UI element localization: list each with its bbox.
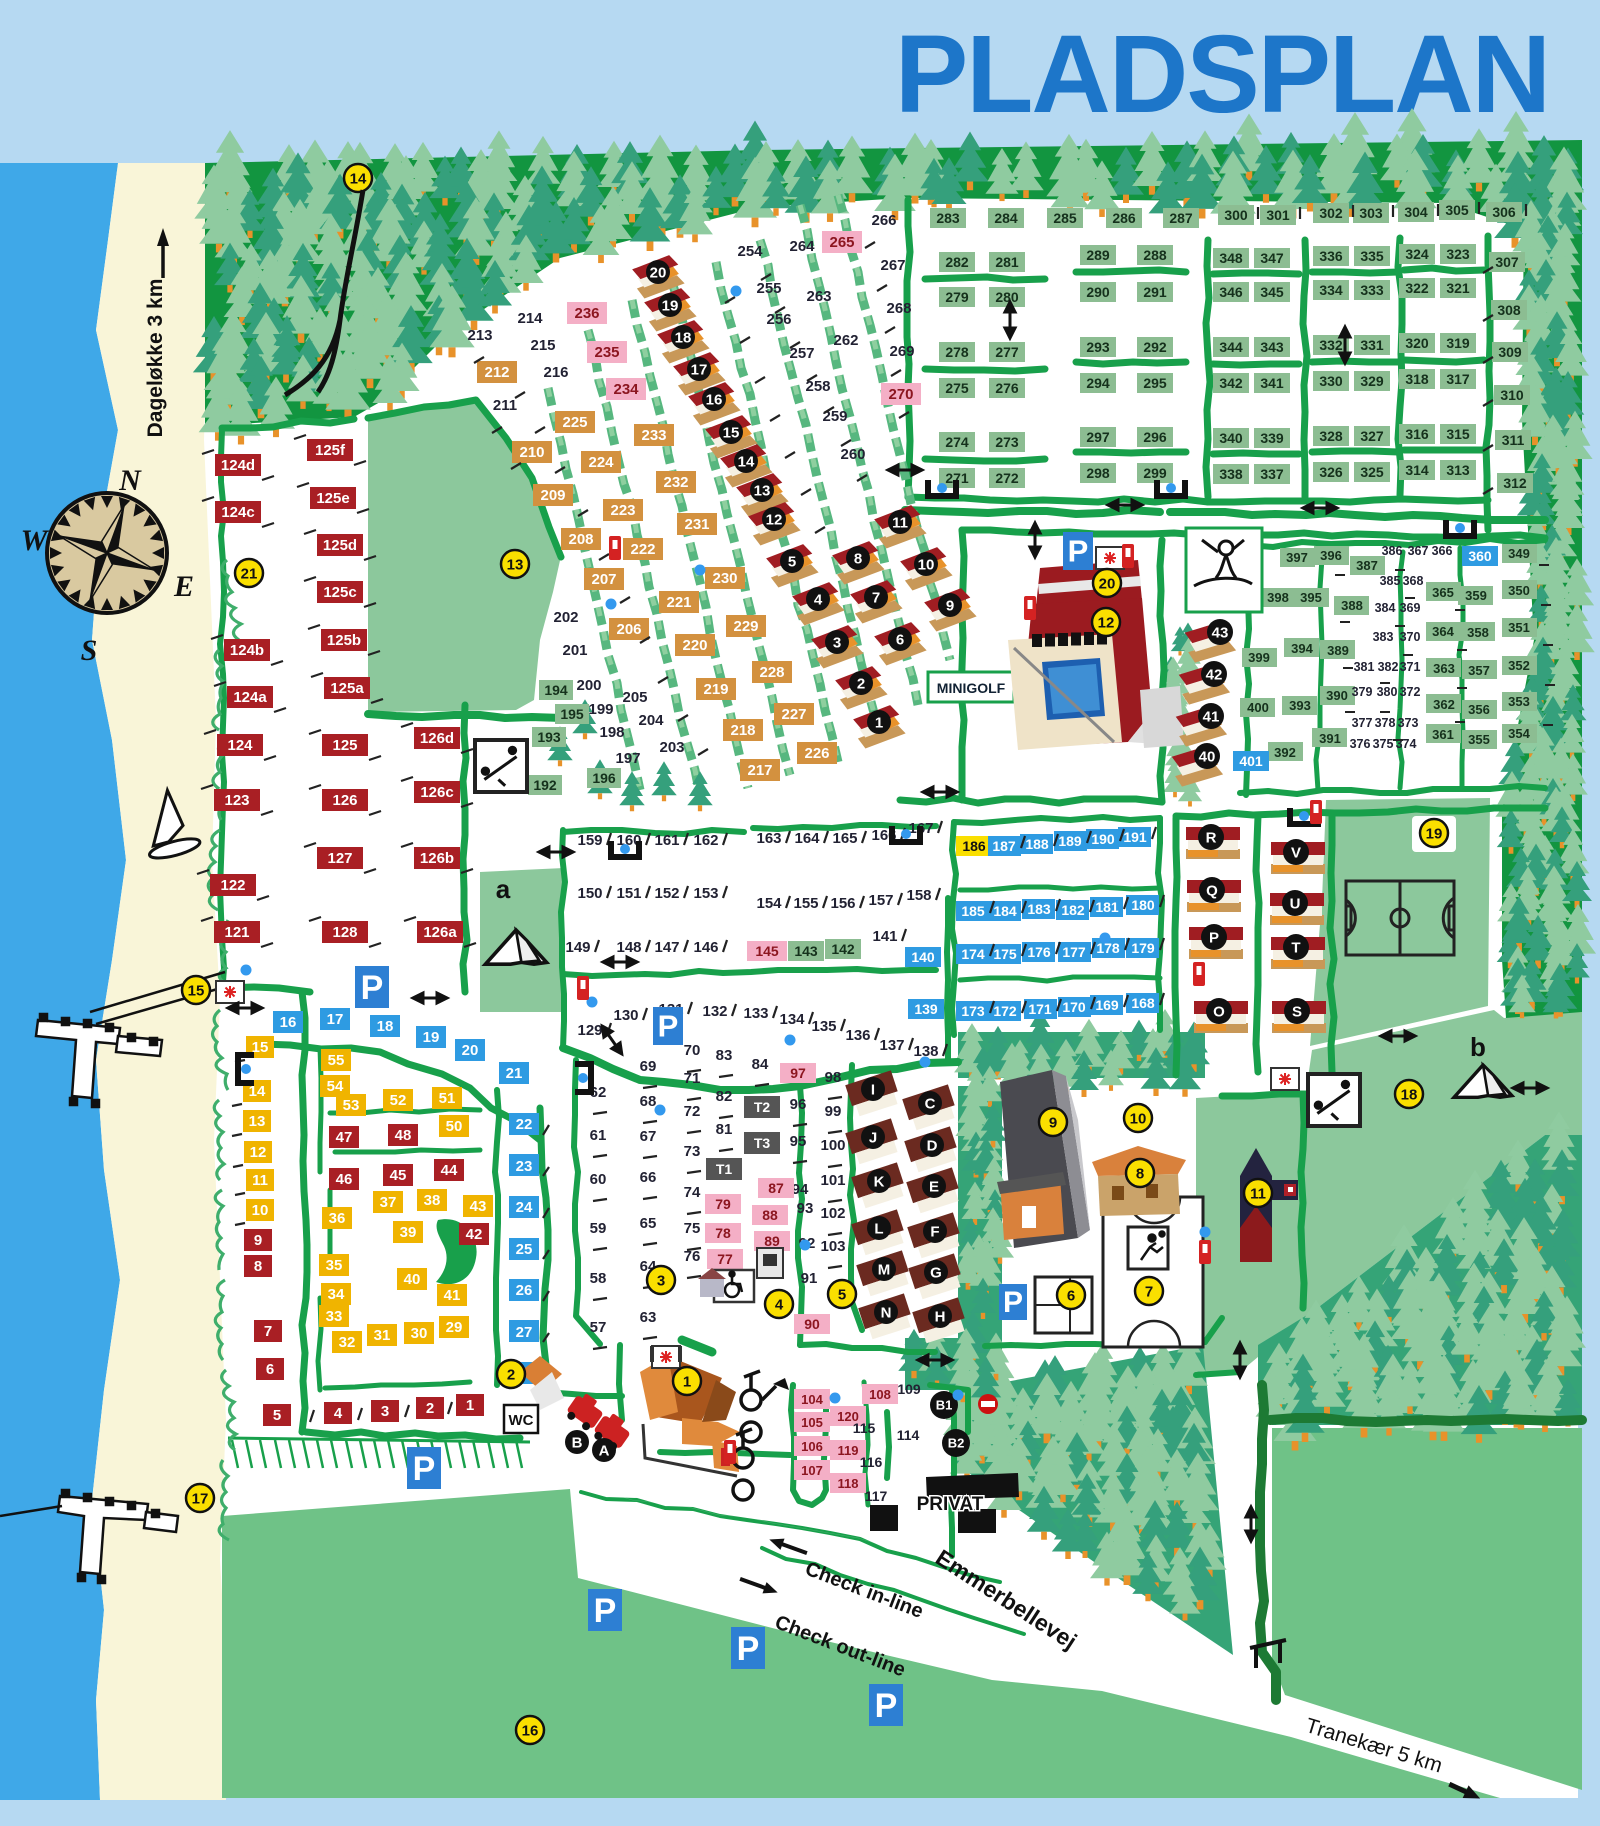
svg-text:I: I (871, 1081, 875, 1098)
svg-text:310: 310 (1500, 387, 1524, 403)
svg-text:298: 298 (1086, 465, 1110, 481)
svg-text:337: 337 (1260, 466, 1284, 482)
svg-text:17: 17 (691, 361, 708, 378)
svg-text:D: D (927, 1137, 938, 1154)
svg-text:342: 342 (1219, 375, 1243, 391)
svg-text:165: 165 (832, 830, 857, 847)
svg-text:19: 19 (662, 297, 679, 314)
svg-text:126: 126 (332, 792, 357, 809)
svg-text:Q: Q (1206, 882, 1218, 899)
svg-text:363: 363 (1433, 661, 1455, 676)
svg-text:70: 70 (684, 1042, 701, 1059)
svg-text:P: P (737, 1630, 760, 1668)
svg-text:380: 380 (1377, 685, 1398, 699)
svg-text:124d: 124d (221, 457, 255, 474)
svg-text:9: 9 (1049, 1114, 1057, 1131)
svg-text:60: 60 (590, 1171, 607, 1188)
svg-text:58: 58 (590, 1270, 607, 1287)
svg-text:15: 15 (723, 424, 740, 441)
svg-text:157: 157 (868, 892, 893, 909)
svg-text:338: 338 (1219, 466, 1243, 482)
svg-text:P: P (413, 1450, 436, 1488)
svg-text:27: 27 (516, 1324, 533, 1341)
svg-text:21: 21 (506, 1065, 523, 1082)
svg-text:268: 268 (886, 300, 911, 317)
svg-text:89: 89 (764, 1233, 780, 1249)
svg-text:126a: 126a (423, 924, 457, 941)
svg-text:52: 52 (390, 1092, 407, 1109)
svg-text:146: 146 (693, 939, 718, 956)
svg-text:104: 104 (801, 1392, 823, 1407)
svg-text:284: 284 (994, 210, 1018, 226)
svg-text:388: 388 (1341, 598, 1363, 613)
svg-text:134: 134 (779, 1011, 805, 1028)
svg-text:217: 217 (747, 762, 772, 779)
svg-text:5: 5 (273, 1407, 281, 1424)
svg-text:344: 344 (1219, 339, 1243, 355)
svg-text:171: 171 (1028, 1001, 1052, 1017)
svg-text:142: 142 (831, 941, 855, 957)
svg-text:175: 175 (993, 946, 1017, 962)
svg-text:323: 323 (1446, 246, 1470, 262)
svg-text:11: 11 (892, 514, 908, 531)
svg-text:59: 59 (590, 1220, 607, 1237)
svg-text:329: 329 (1360, 373, 1384, 389)
svg-text:67: 67 (640, 1128, 657, 1145)
svg-text:233: 233 (641, 427, 666, 444)
svg-text:B1: B1 (936, 1398, 953, 1413)
svg-text:382: 382 (1378, 660, 1399, 674)
svg-text:397: 397 (1286, 550, 1308, 565)
svg-text:4: 4 (775, 1296, 784, 1313)
svg-text:269: 269 (889, 343, 914, 360)
svg-text:121: 121 (224, 924, 249, 941)
svg-text:294: 294 (1086, 375, 1110, 391)
svg-text:31: 31 (374, 1327, 391, 1344)
svg-text:116: 116 (860, 1454, 883, 1470)
svg-text:223: 223 (610, 502, 635, 519)
svg-text:347: 347 (1260, 250, 1284, 266)
svg-text:289: 289 (1086, 247, 1110, 263)
svg-text:359: 359 (1465, 588, 1487, 603)
svg-text:315: 315 (1446, 426, 1470, 442)
svg-text:209: 209 (540, 487, 565, 504)
svg-text:197: 197 (615, 750, 640, 767)
svg-text:107: 107 (801, 1463, 823, 1478)
svg-text:336: 336 (1319, 248, 1343, 264)
svg-text:44: 44 (441, 1162, 458, 1179)
svg-text:311: 311 (1502, 432, 1525, 448)
svg-text:196: 196 (592, 770, 616, 786)
svg-text:360: 360 (1468, 548, 1492, 564)
svg-text:365: 365 (1432, 585, 1454, 600)
svg-text:98: 98 (825, 1069, 842, 1086)
svg-text:263: 263 (806, 288, 831, 305)
svg-text:155: 155 (793, 895, 818, 912)
svg-text:264: 264 (789, 238, 815, 255)
svg-text:188: 188 (1025, 836, 1049, 852)
svg-text:255: 255 (756, 280, 781, 297)
svg-text:P: P (875, 1687, 898, 1725)
svg-text:364: 364 (1432, 624, 1454, 639)
svg-text:292: 292 (1143, 339, 1167, 355)
svg-text:229: 229 (733, 618, 758, 635)
svg-text:324: 324 (1405, 246, 1429, 262)
svg-text:303: 303 (1359, 205, 1383, 221)
svg-text:P: P (1068, 534, 1089, 569)
svg-text:306: 306 (1492, 204, 1516, 220)
svg-text:133: 133 (743, 1005, 768, 1022)
svg-text:164: 164 (794, 830, 820, 847)
svg-text:177: 177 (1062, 944, 1086, 960)
svg-text:400: 400 (1247, 700, 1269, 715)
svg-text:E: E (929, 1178, 939, 1195)
svg-text:214: 214 (517, 310, 543, 327)
svg-text:19: 19 (1426, 825, 1443, 842)
svg-text:385: 385 (1380, 574, 1401, 588)
svg-text:189: 189 (1058, 833, 1082, 849)
svg-text:377: 377 (1352, 716, 1373, 730)
svg-text:195: 195 (560, 706, 584, 722)
svg-text:352: 352 (1508, 658, 1530, 673)
svg-text:22: 22 (516, 1116, 533, 1133)
svg-text:320: 320 (1405, 335, 1429, 351)
svg-text:266: 266 (871, 212, 896, 229)
svg-text:1: 1 (683, 1373, 691, 1390)
svg-text:275: 275 (945, 380, 969, 396)
svg-text:12: 12 (766, 511, 783, 528)
svg-text:156: 156 (830, 895, 855, 912)
svg-text:WC: WC (509, 1412, 534, 1429)
svg-text:172: 172 (993, 1003, 1017, 1019)
svg-text:72: 72 (684, 1103, 701, 1120)
svg-text:114: 114 (897, 1427, 920, 1443)
svg-text:193: 193 (537, 729, 561, 745)
svg-text:51: 51 (439, 1090, 456, 1107)
svg-text:194: 194 (544, 682, 568, 698)
svg-text:57: 57 (590, 1319, 607, 1336)
svg-text:126d: 126d (420, 730, 454, 747)
svg-text:125e: 125e (316, 490, 349, 507)
svg-text:124: 124 (227, 737, 253, 754)
svg-text:V: V (1291, 844, 1301, 861)
svg-text:26: 26 (516, 1282, 533, 1299)
svg-text:75: 75 (684, 1220, 701, 1237)
svg-text:84: 84 (752, 1056, 769, 1073)
svg-text:333: 333 (1360, 282, 1384, 298)
svg-text:273: 273 (995, 434, 1019, 450)
svg-text:46: 46 (336, 1171, 353, 1188)
svg-text:293: 293 (1086, 339, 1110, 355)
svg-text:42: 42 (466, 1226, 483, 1243)
svg-text:13: 13 (754, 482, 771, 499)
svg-text:299: 299 (1143, 465, 1167, 481)
svg-text:125d: 125d (323, 537, 357, 554)
svg-text:280: 280 (995, 289, 1019, 305)
svg-text:29: 29 (446, 1319, 463, 1336)
svg-text:290: 290 (1086, 284, 1110, 300)
svg-text:277: 277 (995, 344, 1019, 360)
svg-text:182: 182 (1061, 902, 1085, 918)
svg-text:6: 6 (1067, 1287, 1075, 1304)
svg-text:286: 286 (1112, 210, 1136, 226)
svg-text:367: 367 (1408, 544, 1429, 558)
svg-text:9: 9 (254, 1232, 262, 1249)
svg-text:340: 340 (1219, 430, 1243, 446)
svg-text:370: 370 (1400, 630, 1421, 644)
svg-text:376: 376 (1350, 737, 1371, 751)
svg-text:325: 325 (1360, 464, 1384, 480)
svg-text:9: 9 (946, 597, 954, 614)
svg-text:61: 61 (590, 1127, 607, 1144)
svg-text:P: P (361, 969, 384, 1007)
svg-text:E: E (173, 570, 194, 603)
svg-text:312: 312 (1503, 475, 1527, 491)
svg-text:391: 391 (1319, 731, 1341, 746)
svg-text:L: L (874, 1220, 883, 1237)
svg-text:73: 73 (684, 1143, 701, 1160)
svg-text:96: 96 (790, 1096, 807, 1113)
svg-text:390: 390 (1326, 688, 1348, 703)
svg-text:7: 7 (872, 589, 880, 606)
svg-text:219: 219 (703, 681, 728, 698)
svg-text:42: 42 (1206, 666, 1223, 683)
svg-text:66: 66 (640, 1169, 657, 1186)
svg-text:203: 203 (659, 739, 684, 756)
svg-text:125b: 125b (327, 632, 361, 649)
svg-text:201: 201 (562, 642, 587, 659)
svg-text:37: 37 (380, 1194, 397, 1211)
svg-text:207: 207 (591, 571, 616, 588)
svg-text:14: 14 (738, 453, 755, 470)
svg-text:B2: B2 (948, 1436, 965, 1451)
svg-text:36: 36 (329, 1210, 346, 1227)
svg-text:145: 145 (755, 943, 779, 959)
svg-text:15: 15 (188, 982, 205, 999)
svg-text:3: 3 (833, 634, 841, 651)
svg-text:77: 77 (717, 1251, 733, 1267)
svg-text:33: 33 (326, 1308, 343, 1325)
svg-text:N: N (881, 1304, 892, 1321)
svg-text:132: 132 (702, 1003, 727, 1020)
svg-text:341: 341 (1260, 375, 1284, 391)
svg-text:346: 346 (1219, 284, 1243, 300)
svg-text:187: 187 (992, 838, 1016, 854)
svg-text:225: 225 (562, 414, 587, 431)
svg-text:173: 173 (961, 1003, 985, 1019)
svg-text:11: 11 (1250, 1185, 1266, 1202)
svg-text:17: 17 (327, 1011, 344, 1028)
svg-text:18: 18 (377, 1018, 394, 1035)
svg-text:13: 13 (249, 1113, 266, 1130)
svg-text:301: 301 (1266, 207, 1290, 223)
svg-text:93: 93 (797, 1200, 814, 1217)
svg-text:161: 161 (654, 832, 679, 849)
svg-text:357: 357 (1468, 663, 1490, 678)
svg-text:141: 141 (872, 928, 897, 945)
svg-text:14: 14 (350, 170, 367, 187)
svg-text:362: 362 (1433, 697, 1455, 712)
svg-text:254: 254 (737, 243, 763, 260)
svg-text:50: 50 (446, 1118, 463, 1135)
svg-text:350: 350 (1508, 583, 1530, 598)
svg-text:7: 7 (1145, 1283, 1153, 1300)
svg-text:220: 220 (682, 637, 707, 654)
svg-text:124a: 124a (233, 689, 267, 706)
svg-text:87: 87 (768, 1180, 784, 1196)
svg-text:296: 296 (1143, 429, 1167, 445)
svg-text:45: 45 (390, 1167, 407, 1184)
svg-text:316: 316 (1405, 426, 1429, 442)
svg-text:125a: 125a (330, 680, 364, 697)
svg-text:119: 119 (838, 1443, 859, 1458)
svg-text:322: 322 (1405, 280, 1429, 296)
svg-text:J: J (869, 1129, 877, 1146)
svg-text:2: 2 (857, 675, 865, 692)
svg-text:16: 16 (280, 1014, 297, 1031)
svg-text:76: 76 (684, 1248, 701, 1265)
svg-text:34: 34 (328, 1286, 345, 1303)
svg-text:118: 118 (838, 1476, 859, 1491)
svg-text:232: 232 (663, 474, 688, 491)
svg-text:185: 185 (961, 903, 985, 919)
svg-text:126b: 126b (420, 850, 454, 867)
svg-text:265: 265 (829, 234, 854, 251)
svg-text:32: 32 (339, 1334, 356, 1351)
svg-text:176: 176 (1027, 944, 1051, 960)
svg-text:6: 6 (896, 631, 904, 648)
svg-text:270: 270 (888, 386, 913, 403)
svg-text:PRIVAT: PRIVAT (917, 1494, 984, 1515)
svg-text:30: 30 (411, 1325, 428, 1342)
svg-text:128: 128 (332, 924, 357, 941)
svg-text:200: 200 (576, 677, 601, 694)
svg-text:236: 236 (574, 305, 599, 322)
svg-text:354: 354 (1508, 726, 1530, 741)
svg-text:190: 190 (1091, 831, 1115, 847)
svg-text:345: 345 (1260, 284, 1284, 300)
svg-text:152: 152 (654, 885, 679, 902)
svg-text:125: 125 (332, 737, 357, 754)
svg-text:328: 328 (1319, 428, 1343, 444)
svg-text:396: 396 (1320, 548, 1342, 563)
svg-text:16: 16 (706, 391, 723, 408)
svg-text:8: 8 (254, 1258, 262, 1275)
svg-text:124c: 124c (221, 504, 254, 521)
svg-text:83: 83 (716, 1047, 733, 1064)
svg-text:267: 267 (880, 257, 905, 274)
svg-text:122: 122 (220, 877, 245, 894)
svg-text:G: G (930, 1264, 942, 1281)
svg-text:148: 148 (616, 939, 641, 956)
svg-text:P: P (1003, 1286, 1023, 1319)
svg-text:A: A (599, 1442, 610, 1459)
svg-text:279: 279 (945, 289, 969, 305)
svg-text:17: 17 (192, 1490, 209, 1507)
svg-text:M: M (878, 1261, 891, 1278)
svg-text:81: 81 (716, 1121, 733, 1138)
svg-text:91: 91 (801, 1270, 818, 1287)
svg-text:308: 308 (1497, 302, 1521, 318)
svg-text:105: 105 (801, 1415, 823, 1430)
svg-text:169: 169 (1095, 997, 1119, 1013)
svg-text:327: 327 (1360, 428, 1384, 444)
svg-text:41: 41 (444, 1287, 461, 1304)
svg-text:348: 348 (1219, 250, 1243, 266)
svg-text:129: 129 (577, 1022, 602, 1039)
svg-text:140: 140 (911, 949, 935, 965)
svg-text:355: 355 (1468, 732, 1490, 747)
svg-text:39: 39 (400, 1224, 417, 1241)
svg-text:21: 21 (241, 565, 258, 582)
svg-text:230: 230 (712, 570, 737, 587)
svg-text:302: 302 (1319, 205, 1343, 221)
svg-text:54: 54 (327, 1078, 344, 1095)
svg-text:210: 210 (519, 444, 544, 461)
svg-text:281: 281 (995, 254, 1019, 270)
svg-text:321: 321 (1446, 280, 1470, 296)
svg-text:218: 218 (730, 722, 755, 739)
svg-text:H: H (935, 1308, 946, 1325)
svg-text:5: 5 (838, 1286, 846, 1303)
svg-text:159: 159 (577, 832, 602, 849)
svg-text:41: 41 (1203, 708, 1220, 725)
svg-text:398: 398 (1267, 590, 1289, 605)
svg-text:95: 95 (790, 1133, 807, 1150)
svg-text:358: 358 (1467, 625, 1489, 640)
svg-text:211: 211 (493, 397, 517, 414)
svg-text:6: 6 (266, 1361, 274, 1378)
svg-text:Dageløkke 3 km: Dageløkke 3 km (144, 279, 167, 438)
svg-text:319: 319 (1446, 335, 1470, 351)
svg-text:208: 208 (568, 531, 593, 548)
svg-text:101: 101 (820, 1172, 845, 1189)
svg-text:82: 82 (716, 1088, 733, 1105)
svg-text:174: 174 (961, 946, 985, 962)
svg-text:13: 13 (507, 556, 524, 573)
svg-text:394: 394 (1291, 641, 1313, 656)
svg-text:19: 19 (423, 1029, 440, 1046)
svg-text:318: 318 (1405, 371, 1429, 387)
svg-text:221: 221 (666, 594, 691, 611)
svg-text:3: 3 (381, 1403, 389, 1420)
svg-text:291: 291 (1143, 284, 1167, 300)
svg-text:T2: T2 (754, 1099, 771, 1115)
svg-text:102: 102 (820, 1205, 845, 1222)
svg-text:47: 47 (336, 1129, 353, 1146)
svg-text:227: 227 (781, 706, 806, 723)
svg-text:4: 4 (814, 591, 823, 608)
svg-text:334: 334 (1319, 282, 1343, 298)
svg-text:260: 260 (840, 446, 865, 463)
svg-text:183: 183 (1027, 901, 1051, 917)
svg-text:330: 330 (1319, 373, 1343, 389)
svg-text:274: 274 (945, 434, 969, 450)
svg-text:25: 25 (516, 1241, 533, 1258)
svg-text:222: 222 (630, 541, 655, 558)
svg-text:K: K (874, 1173, 885, 1190)
svg-text:S: S (1292, 1003, 1302, 1020)
svg-text:136: 136 (845, 1027, 870, 1044)
svg-text:343: 343 (1260, 339, 1284, 355)
svg-text:126c: 126c (420, 784, 453, 801)
svg-text:71: 71 (684, 1070, 701, 1087)
svg-text:351: 351 (1508, 620, 1530, 635)
svg-text:392: 392 (1274, 745, 1296, 760)
svg-text:T3: T3 (754, 1135, 771, 1151)
svg-text:234: 234 (613, 381, 639, 398)
svg-text:278: 278 (945, 344, 969, 360)
